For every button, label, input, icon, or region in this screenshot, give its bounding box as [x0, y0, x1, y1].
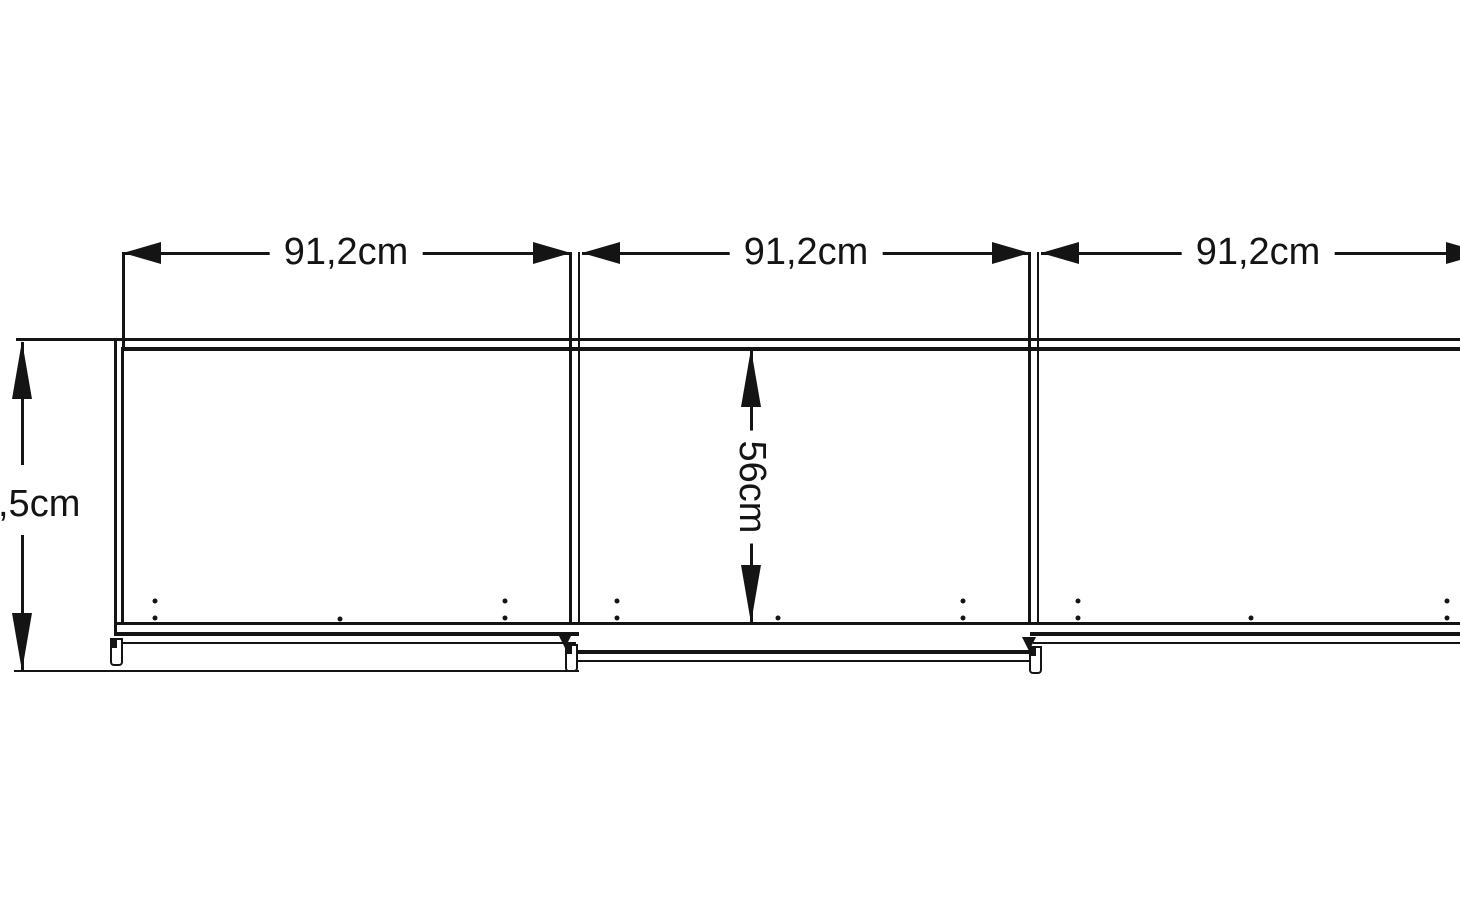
height-dimension-label: ,5cm: [0, 484, 80, 526]
down-arrow-icon: [12, 613, 32, 671]
door-divider-1-line: [569, 252, 572, 624]
roller-foot: [110, 638, 123, 666]
door-bottom-rail-right-top: [1030, 632, 1460, 636]
screw-hole-dot: [1249, 616, 1254, 621]
wardrobe-dimension-diagram: 91,2cm 91,2cm 91,2cm ,5cm 56cm: [0, 0, 1460, 914]
screw-hole-dot: [153, 599, 158, 604]
screw-hole-dot: [1076, 616, 1081, 621]
door-bottom-rail-left-top: [114, 632, 579, 636]
screw-hole-dot: [503, 616, 508, 621]
dimension-label-door-1: 91,2cm: [270, 232, 423, 274]
roller-foot-detail: [565, 644, 572, 654]
cabinet-left-side-outer: [114, 338, 117, 636]
screw-hole-dot: [1445, 599, 1450, 604]
cabinet-top-edge-inner: [121, 347, 1460, 351]
left-arrow-icon: [123, 242, 161, 264]
door-bottom-rail-middle-top: [572, 650, 1038, 654]
door-bottom-edge-left: [14, 670, 579, 672]
cabinet-top-edge-outer: [114, 338, 1460, 341]
door-bottom-rail-middle-bottom: [575, 660, 1036, 662]
right-arrow-icon: [992, 242, 1030, 264]
screw-hole-dot: [503, 599, 508, 604]
inner-height-dimension-label: 56cm: [730, 431, 772, 544]
door-divider-2-line: [1037, 252, 1040, 624]
dimension-label-door-3: 91,2cm: [1182, 232, 1335, 274]
down-arrow-icon: [741, 565, 761, 623]
door-bottom-rail-left-bottom: [116, 642, 576, 644]
extension-line-left: [122, 252, 125, 348]
screw-hole-dot: [615, 616, 620, 621]
door-bottom-rail-right-bottom: [1033, 642, 1460, 644]
screw-hole-dot: [153, 616, 158, 621]
dimension-label-door-2: 91,2cm: [730, 232, 883, 274]
screw-hole-dot: [338, 617, 343, 622]
up-arrow-icon: [741, 349, 761, 407]
screw-hole-dot: [1076, 599, 1081, 604]
screw-hole-dot: [961, 599, 966, 604]
left-arrow-icon: [582, 242, 620, 264]
left-arrow-icon: [1041, 242, 1079, 264]
door-divider-1-line: [578, 252, 581, 624]
door-divider-2-line: [1028, 252, 1031, 624]
cabinet-bottom-edge: [114, 622, 1460, 625]
cabinet-left-side-inner: [121, 347, 124, 625]
screw-hole-dot: [961, 616, 966, 621]
screw-hole-dot: [1445, 616, 1450, 621]
right-arrow-icon: [1446, 242, 1460, 264]
screw-hole-dot: [776, 616, 781, 621]
roller-foot-detail: [110, 638, 117, 648]
up-arrow-icon: [12, 341, 32, 399]
roller-foot: [1029, 646, 1042, 674]
roller-foot-detail: [1029, 646, 1036, 656]
screw-hole-dot: [615, 599, 620, 604]
roller-foot: [565, 644, 578, 672]
right-arrow-icon: [533, 242, 571, 264]
